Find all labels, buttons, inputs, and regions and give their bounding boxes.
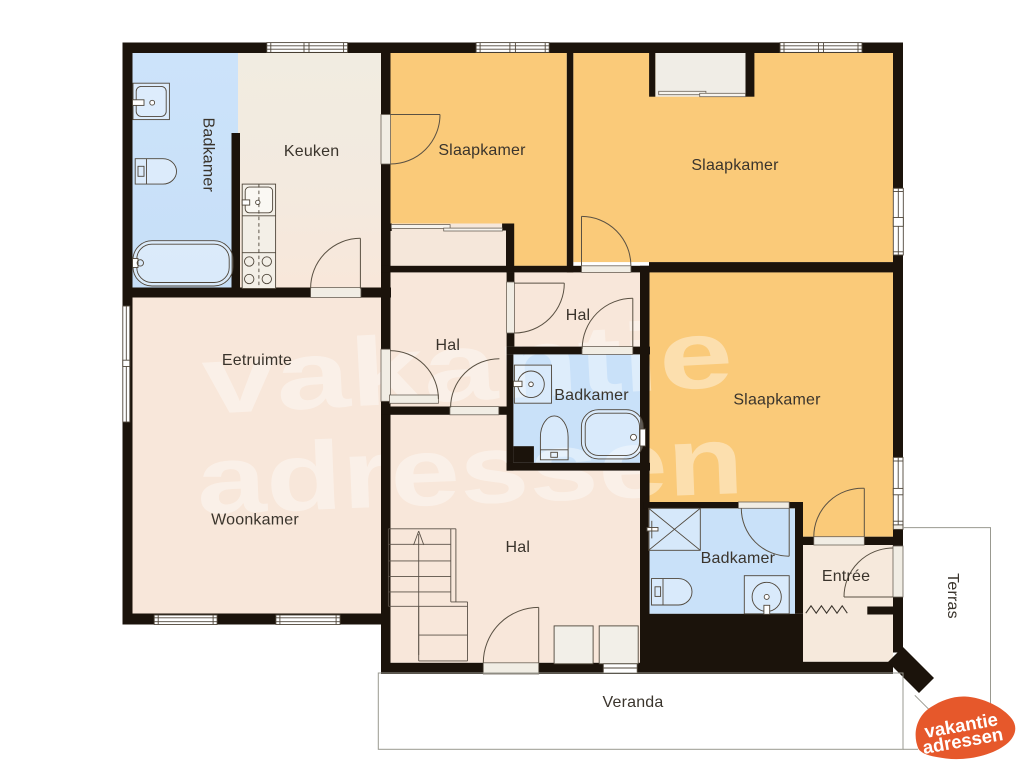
svg-text:Hal: Hal (435, 337, 460, 354)
svg-text:Slaapkamer: Slaapkamer (691, 157, 779, 174)
svg-text:Slaapkamer: Slaapkamer (438, 142, 526, 159)
svg-text:Entrée: Entrée (822, 568, 870, 585)
svg-text:Badkamer: Badkamer (701, 550, 776, 567)
svg-text:Eetruimte: Eetruimte (222, 352, 292, 369)
svg-text:Keuken: Keuken (284, 143, 339, 160)
svg-text:Badkamer: Badkamer (199, 118, 216, 193)
svg-text:Hal: Hal (566, 307, 591, 324)
svg-text:Terras: Terras (944, 573, 961, 619)
svg-text:Badkamer: Badkamer (554, 387, 629, 404)
svg-text:Hal: Hal (505, 539, 530, 556)
svg-text:Slaapkamer: Slaapkamer (733, 392, 821, 409)
svg-text:Woonkamer: Woonkamer (211, 512, 299, 529)
svg-text:Veranda: Veranda (602, 694, 663, 711)
